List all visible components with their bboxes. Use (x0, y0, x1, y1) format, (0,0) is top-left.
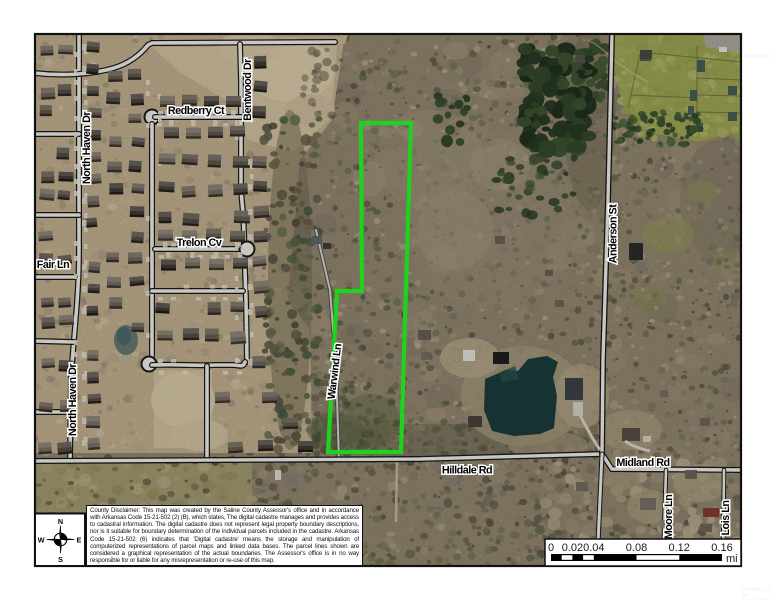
svg-text:0.02: 0.02 (562, 542, 583, 554)
svg-text:W: W (38, 536, 45, 545)
svg-text:S: S (58, 555, 63, 564)
svg-text:Midland Rd: Midland Rd (616, 457, 669, 469)
svg-text:Trelon Cv: Trelon Cv (177, 237, 222, 249)
svg-text:Moore Ln: Moore Ln (663, 495, 675, 540)
svg-text:Redberry Ct: Redberry Ct (168, 105, 225, 117)
svg-text:E: E (77, 536, 82, 545)
svg-text:0.12: 0.12 (668, 542, 689, 554)
svg-text:North Haven Dr: North Haven Dr (81, 111, 93, 184)
svg-text:Anderson St: Anderson St (608, 204, 620, 264)
svg-text:Lois Ln: Lois Ln (720, 501, 732, 536)
svg-text:N: N (58, 517, 63, 526)
svg-text:0.04: 0.04 (583, 542, 604, 554)
svg-text:North Haven Dr: North Haven Dr (67, 363, 79, 436)
svg-text:mi: mi (726, 553, 738, 565)
svg-text:Hilldale Rd: Hilldale Rd (442, 465, 492, 477)
svg-text:Fair Ln: Fair Ln (37, 259, 70, 271)
svg-text:Bentwood Dr: Bentwood Dr (242, 58, 254, 121)
svg-text:0.08: 0.08 (626, 542, 647, 554)
svg-text:0: 0 (548, 542, 554, 554)
